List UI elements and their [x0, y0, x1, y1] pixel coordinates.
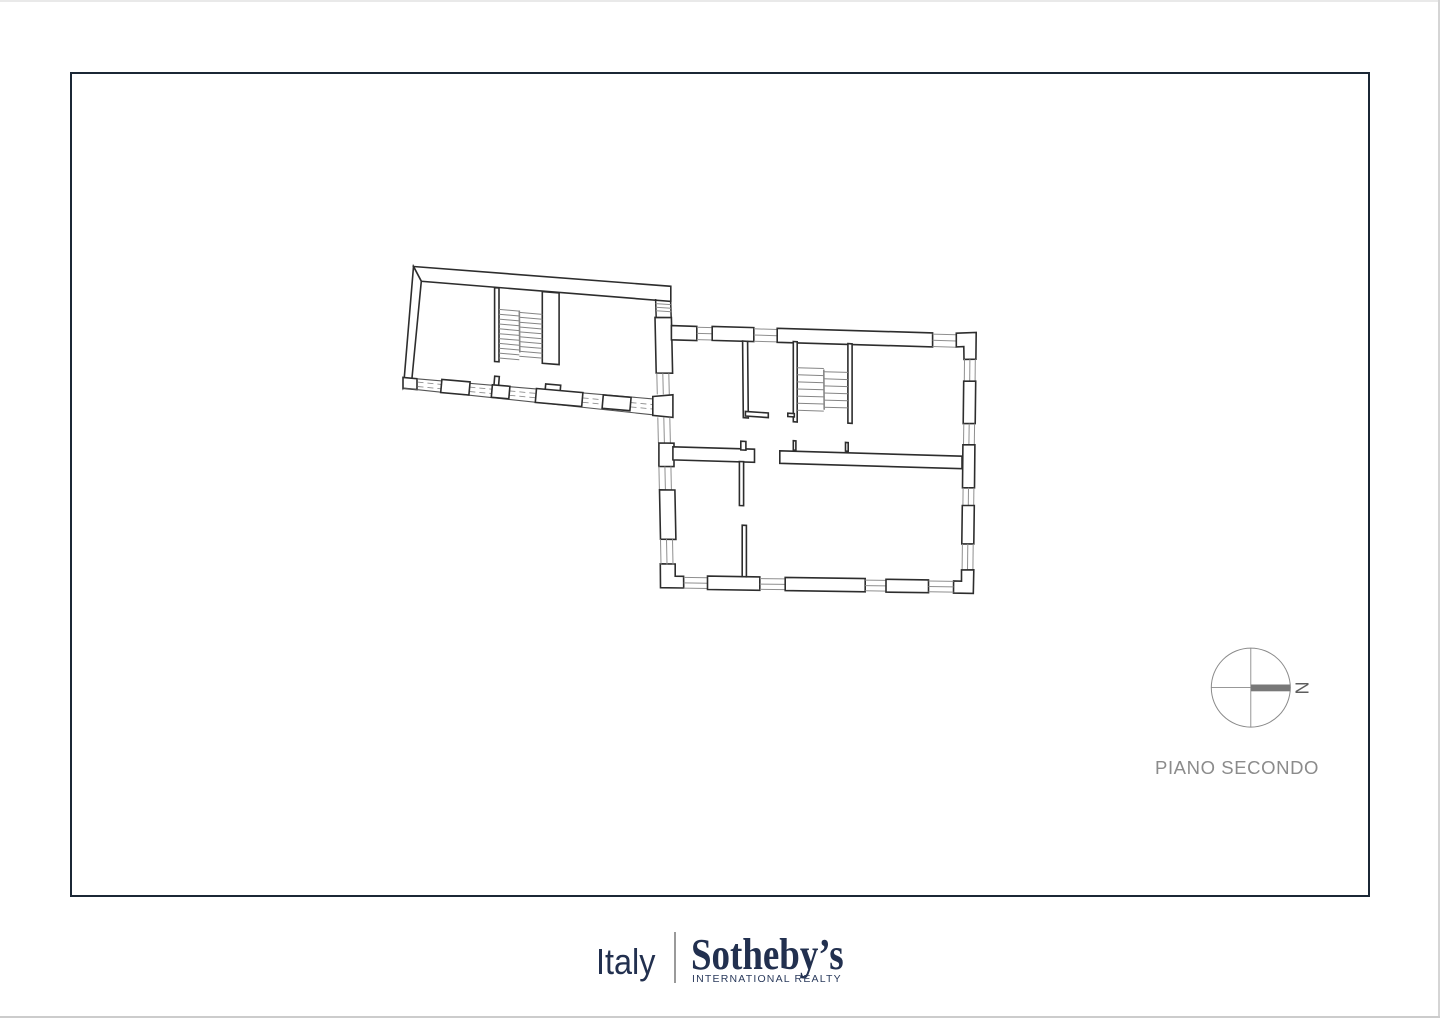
svg-text:N: N [1292, 682, 1312, 695]
